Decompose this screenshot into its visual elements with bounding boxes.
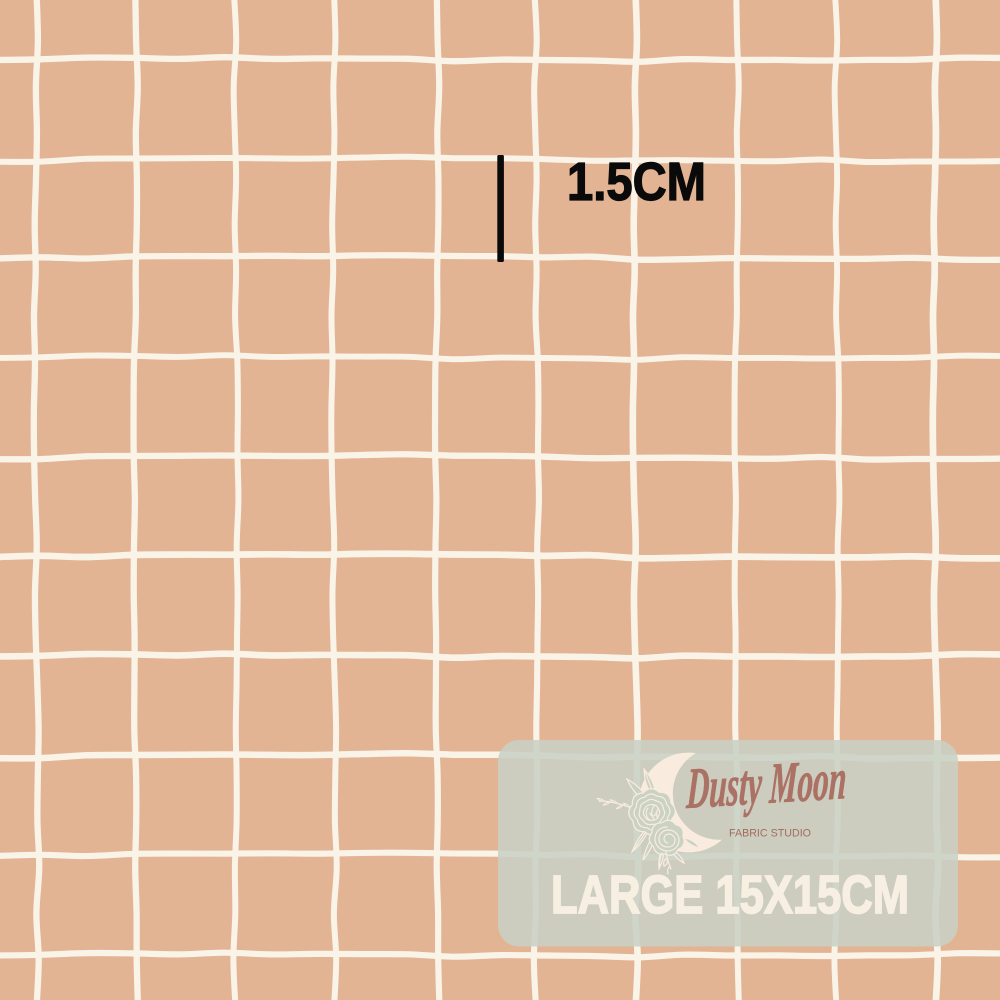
svg-text:LARGE 15X15CM: LARGE 15X15CM [551,865,909,925]
svg-text:1.5CM: 1.5CM [567,152,706,212]
svg-text:Dusty Moon: Dusty Moon [685,746,848,821]
svg-text:FABRIC STUDIO: FABRIC STUDIO [729,828,811,840]
